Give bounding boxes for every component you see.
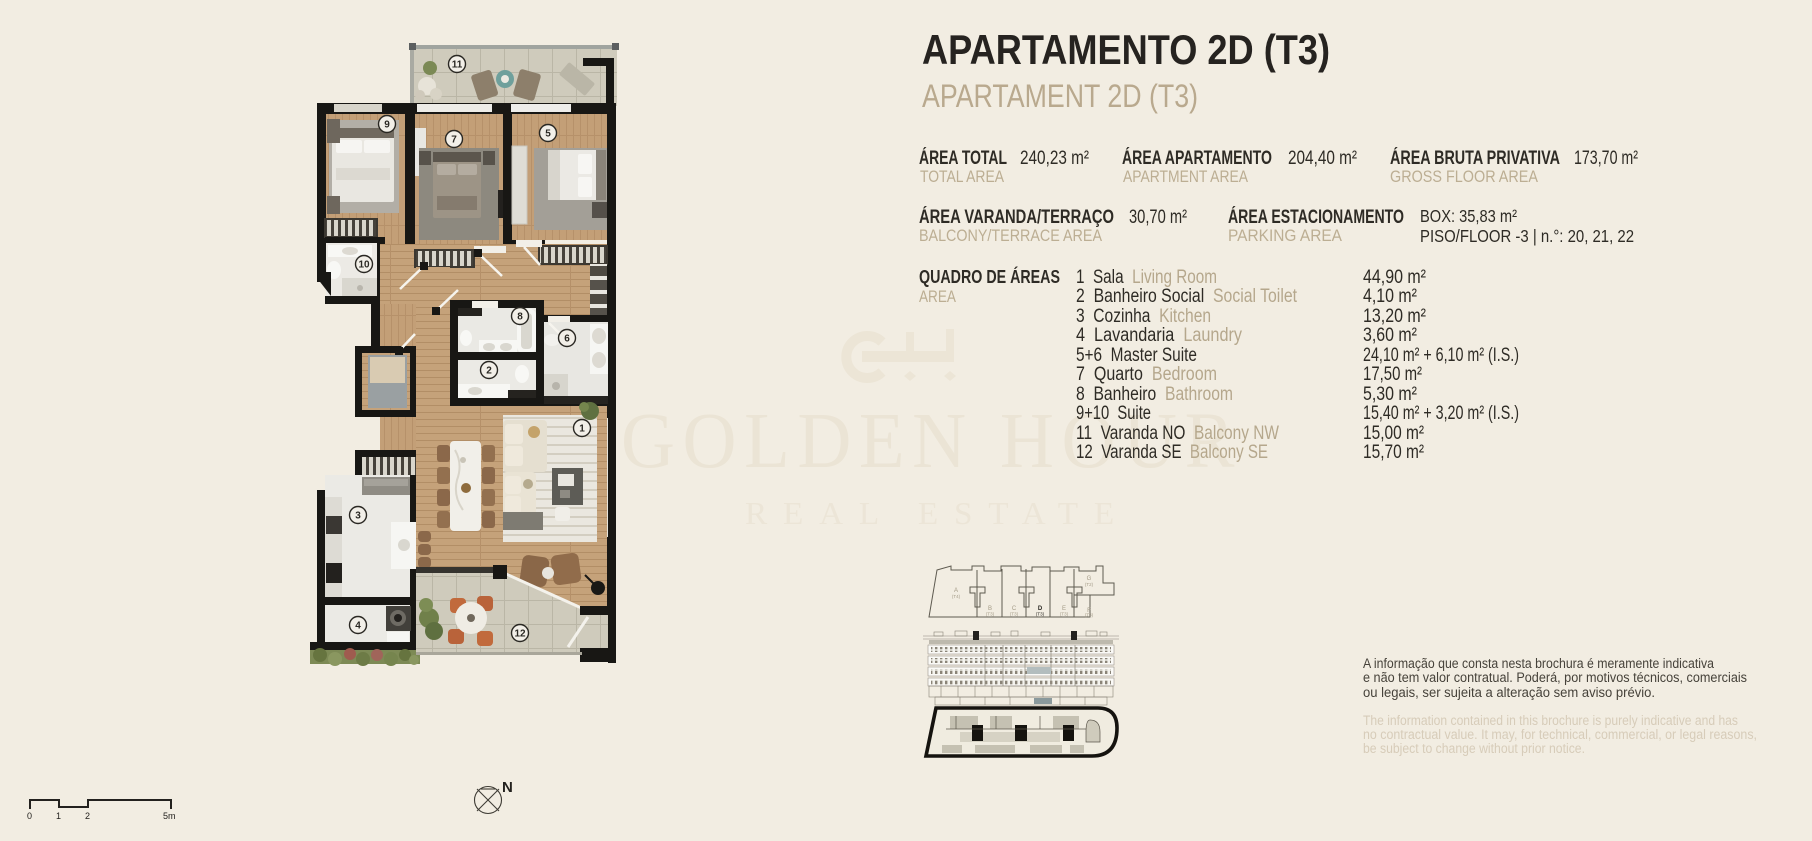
svg-text:5m: 5m xyxy=(163,811,176,821)
svg-text:(T3): (T3) xyxy=(1060,612,1069,617)
svg-text:0: 0 xyxy=(27,811,32,821)
svg-text:2: 2 xyxy=(486,366,492,377)
svg-text:6: 6 xyxy=(564,334,570,345)
svg-text:12: 12 xyxy=(514,629,526,640)
svg-text:(T3): (T3) xyxy=(986,612,995,617)
svg-text:8: 8 xyxy=(517,312,523,323)
svg-text:(T2): (T2) xyxy=(1085,582,1094,587)
svg-text:(T3): (T3) xyxy=(1036,612,1045,617)
svg-text:N: N xyxy=(502,779,513,796)
svg-text:(T4): (T4) xyxy=(952,594,961,599)
svg-text:2: 2 xyxy=(85,811,90,821)
svg-text:9: 9 xyxy=(384,120,390,131)
svg-text:1: 1 xyxy=(56,811,61,821)
svg-text:(T3): (T3) xyxy=(1010,612,1019,617)
svg-text:1: 1 xyxy=(579,424,585,435)
svg-text:11: 11 xyxy=(452,60,463,71)
svg-text:3: 3 xyxy=(355,511,361,522)
svg-text:5: 5 xyxy=(545,129,551,140)
svg-text:(T3): (T3) xyxy=(1085,613,1094,618)
svg-text:10: 10 xyxy=(358,260,370,271)
svg-text:4: 4 xyxy=(355,621,361,632)
svg-text:7: 7 xyxy=(451,135,457,146)
